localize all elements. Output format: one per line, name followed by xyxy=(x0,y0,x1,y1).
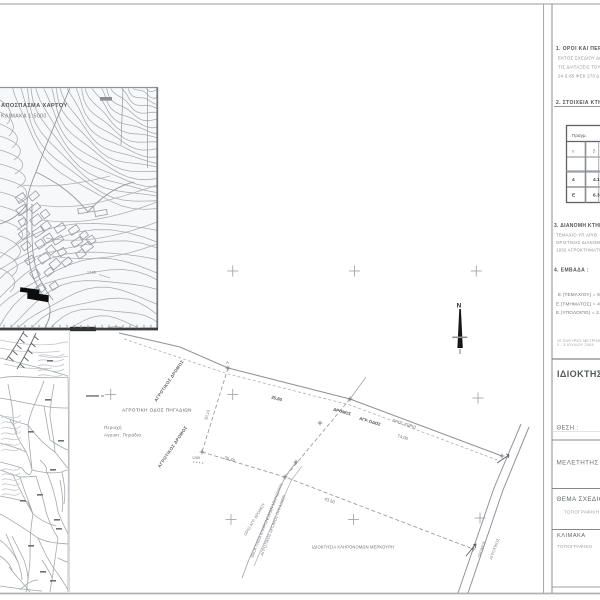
svg-text:24-5-85 ΦΕΚ 270 Δ ΟΠΩΣ ΙΣΧΥΕΙ: 24-5-85 ΦΕΚ 270 Δ ΟΠΩΣ ΙΣΧΥΕΙ xyxy=(558,74,600,79)
svg-text:ΘΕΜΑ ΣΧΕΔΙΟΥ: ΘΕΜΑ ΣΧΕΔΙΟΥ xyxy=(557,496,600,503)
svg-text:1285: 1285 xyxy=(192,456,200,460)
svg-text:ΜΕΛΕΤΗΤΗΣ: ΜΕΛΕΤΗΤΗΣ xyxy=(557,460,599,467)
svg-text:N: N xyxy=(457,303,462,310)
svg-text:1932 ΑΓΡΟΚΤΗΜΑΤΟΣ ΠΗΓΑΔΙΩΝ: 1932 ΑΓΡΟΚΤΗΜΑΤΟΣ ΠΗΓΑΔΙΩΝ xyxy=(556,248,600,253)
svg-text:Ε.(ΥΠΟΛΟΙΠΟ) = 2.216,5 τ.μ.: Ε.(ΥΠΟΛΟΙΠΟ) = 2.216,5 τ.μ. xyxy=(556,310,600,315)
svg-text:ΕΚΤΟΣ ΣΧΕΔΙΟΥ ΔΟΜΗΣΗ ΚΑΤΑ: ΕΚΤΟΣ ΣΧΕΔΙΟΥ ΔΟΜΗΣΗ ΚΑΤΑ xyxy=(558,56,600,61)
svg-text:3. ΔΙΑΝΟΜΗ ΚΤΗΜΑΤΟΣ 1932: 3. ΔΙΑΝΟΜΗ ΚΤΗΜΑΤΟΣ 1932 xyxy=(554,223,600,229)
svg-text:Αγροκτ. Πηγάδια: Αγροκτ. Πηγάδια xyxy=(104,433,141,438)
svg-text:Περιοχή: Περιοχή xyxy=(104,425,122,430)
svg-text:4. ΕΜΒΑΔΑ :: 4. ΕΜΒΑΔΑ : xyxy=(554,268,589,274)
svg-text:ΙΔΙΟΚΤΗΣΙΑ: ΙΔΙΟΚΤΗΣΙΑ xyxy=(557,369,600,379)
svg-text:2 - 3 ΙΟΥΛΙΟΥ 2004: 2 - 3 ΙΟΥΛΙΟΥ 2004 xyxy=(557,343,594,347)
svg-text:ΤΟΠΟΓΡΑΦΙΚΟ: ΤΟΠΟΓΡΑΦΙΚΟ xyxy=(557,544,593,549)
svg-text:4: 4 xyxy=(572,177,575,183)
svg-text:ΑΓΡΟΤΙΚΗ ΟΔΟΣ ΠΗΓΑΔΙΩΝ: ΑΓΡΟΤΙΚΗ ΟΔΟΣ ΠΗΓΑΔΙΩΝ xyxy=(122,408,192,413)
svg-text:ΤΙΣ ΔΙΑΤΑΞΕΙΣ ΤΟΥ Π.Δ. ΤΗΣ: ΤΙΣ ΔΙΑΤΑΞΕΙΣ ΤΟΥ Π.Δ. ΤΗΣ xyxy=(558,65,600,70)
svg-text:ΟΡΙΣΤΙΚΗΣ ΔΙΑΝΟΜΗΣ ΤΟΥ ΕΤΟΥΣ: ΟΡΙΣΤΙΚΗΣ ΔΙΑΝΟΜΗΣ ΤΟΥ ΕΤΟΥΣ xyxy=(556,240,600,245)
svg-text:ΚΛΙΜΑΚΑ: ΚΛΙΜΑΚΑ xyxy=(557,533,586,539)
svg-text:2. ΣΤΟΙΧΕΙΑ ΚΤΗΜΑΤΟΣ: 2. ΣΤΟΙΧΕΙΑ ΚΤΗΜΑΤΟΣ xyxy=(556,100,600,106)
svg-text:6.3: 6.3 xyxy=(593,193,600,199)
svg-text:ΑΠΟΣΠΑΣΜΑ ΧΑΡΤΟΥ: ΑΠΟΣΠΑΣΜΑ ΧΑΡΤΟΥ xyxy=(1,103,68,109)
svg-text:ΤΕΜΑΧΙΟ ΥΠ ΑΡΙΘ. 128 ΤΗΣ: ΤΕΜΑΧΙΟ ΥΠ ΑΡΙΘ. 128 ΤΗΣ xyxy=(556,233,600,238)
svg-text:Ε.(ΤΜΗΜΑΤΟΣ) = 4.125,6 τ.μ.: Ε.(ΤΜΗΜΑΤΟΣ) = 4.125,6 τ.μ. xyxy=(556,302,600,307)
svg-text:A: A xyxy=(226,360,229,365)
svg-text:1285: 1285 xyxy=(87,271,96,275)
svg-text:ΤΟΠΟΓΡΑΦΙΚΗ ΑΠΟΤΥΠΩΣΗ: ΤΟΠΟΓΡΑΦΙΚΗ ΑΠΟΤΥΠΩΣΗ xyxy=(564,510,600,515)
svg-text:1. ΟΡΟΙ ΚΑΙ ΠΕΡΙΟΡΙΣΜΟΙ: 1. ΟΡΟΙ ΚΑΙ ΠΕΡΙΟΡΙΣΜΟΙ xyxy=(556,46,600,52)
svg-text:ΘΕΣΗ :: ΘΕΣΗ : xyxy=(557,426,579,432)
svg-text:Ε (ΤΕΜΑΧΙΟΥ) = 6.342,10 τ.μ.: Ε (ΤΕΜΑΧΙΟΥ) = 6.342,10 τ.μ. xyxy=(558,292,600,297)
svg-text:4.1: 4.1 xyxy=(593,177,600,183)
svg-text:ΚΛΙΜΑΚΑ 1:5000: ΚΛΙΜΑΚΑ 1:5000 xyxy=(1,114,47,120)
svg-text:Πραγμ.: Πραγμ. xyxy=(572,133,587,138)
svg-text:ΙΔΙΟΚΤΗΣΙΑ ΚΛΗΡΟΝΟΜΩΝ ΜΕΡΚΟΥΡΗ: ΙΔΙΟΚΤΗΣΙΑ ΚΛΗΡΟΝΟΜΩΝ ΜΕΡΚΟΥΡΗ xyxy=(312,545,394,550)
